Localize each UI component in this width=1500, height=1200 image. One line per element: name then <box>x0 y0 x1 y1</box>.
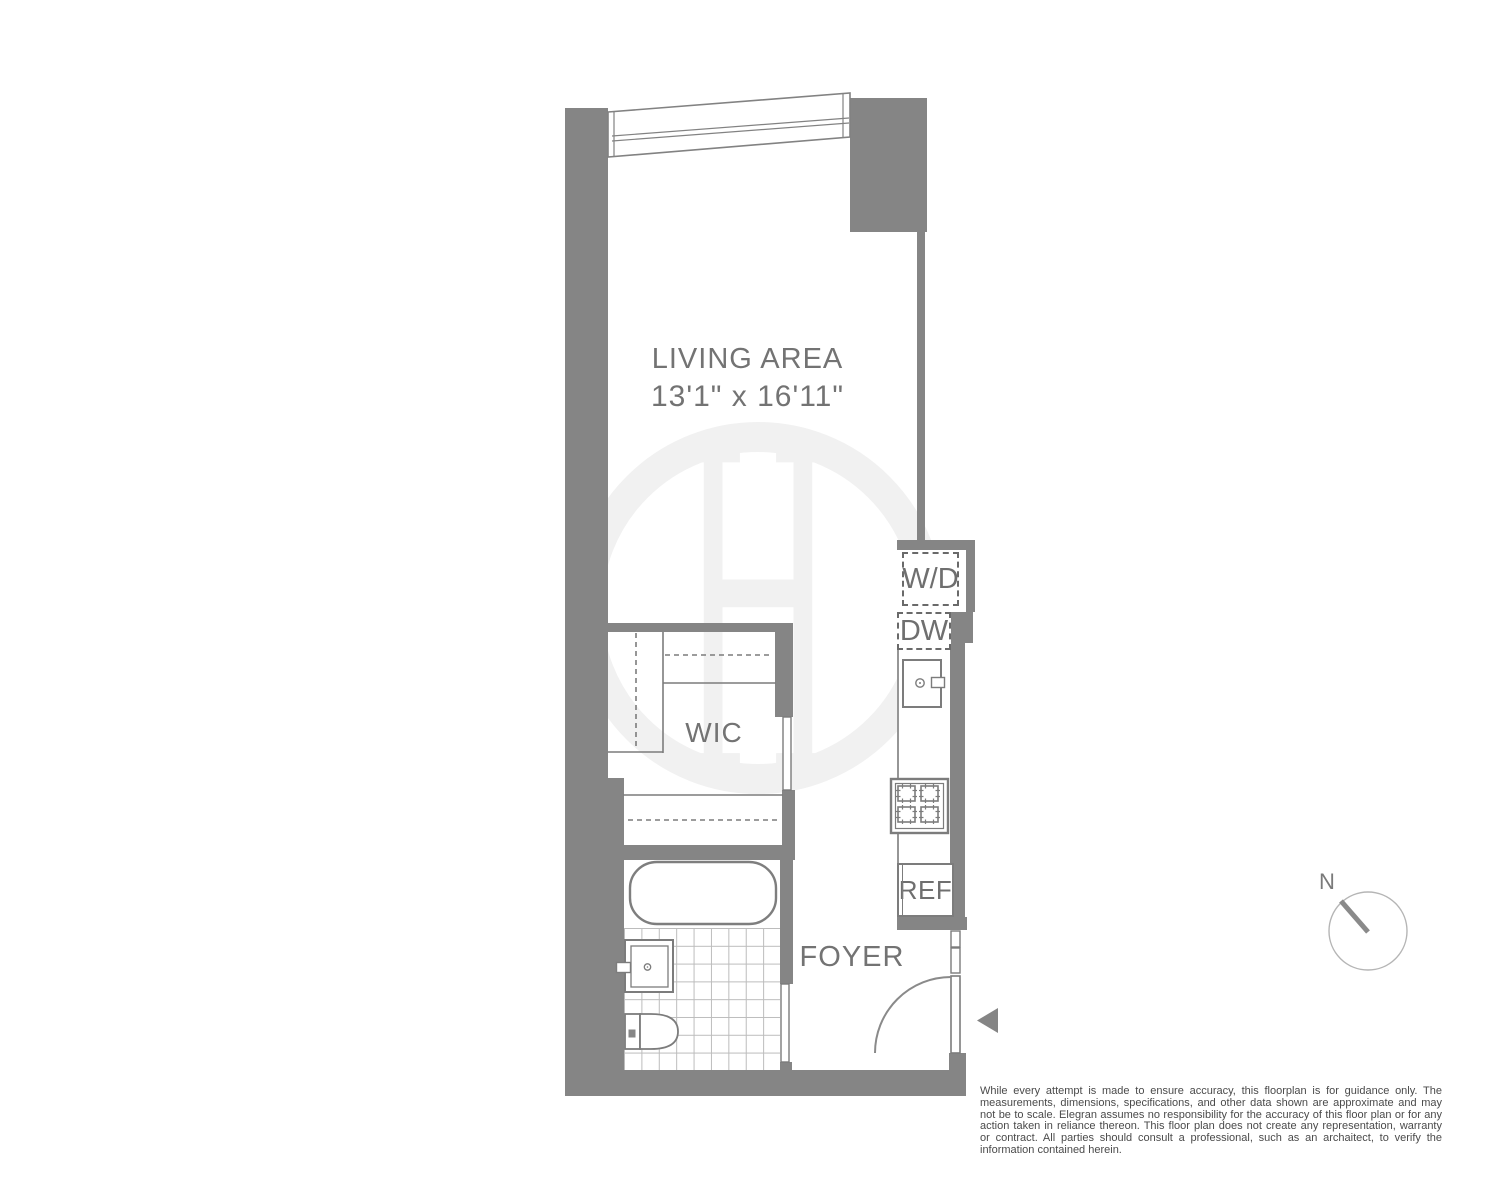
refrigerator-label: REF <box>899 875 953 906</box>
washer-dryer-label: W/D <box>902 563 958 596</box>
compass-needle-icon <box>1341 901 1368 932</box>
dishwasher-label: DW <box>900 615 948 648</box>
bathroom-sink <box>617 940 674 992</box>
living-area-dimensions: 13'1" x 16'11" <box>590 378 905 416</box>
refrigerator-box: REF <box>897 863 954 917</box>
wic-door <box>783 717 791 790</box>
compass <box>1329 892 1407 970</box>
dishwasher-box: DW <box>897 612 951 650</box>
bathtub <box>630 862 776 924</box>
entry-arrow-icon <box>977 1008 998 1033</box>
disclaimer-text: While every attempt is made to ensure ac… <box>980 1086 1442 1157</box>
bathroom-door <box>781 984 789 1062</box>
compass-north-label: N <box>1310 869 1344 895</box>
floor-plan-page: H <box>0 0 1500 1200</box>
fixtures <box>0 0 1500 1200</box>
living-area-label: LIVING AREA <box>590 341 905 378</box>
foyer-label: FOYER <box>777 941 927 974</box>
linen-closet-lines <box>623 795 783 820</box>
stove <box>891 779 948 833</box>
door-swing-arc <box>875 977 951 1053</box>
kitchen-sink <box>903 660 945 707</box>
living-area-labels: LIVING AREA 13'1" x 16'11" <box>590 341 905 416</box>
toilet <box>625 1014 678 1049</box>
window <box>608 93 850 157</box>
washer-dryer-box: W/D <box>902 552 959 606</box>
wic-label: WIC <box>664 717 764 749</box>
refrigerator-door-line <box>902 865 903 915</box>
